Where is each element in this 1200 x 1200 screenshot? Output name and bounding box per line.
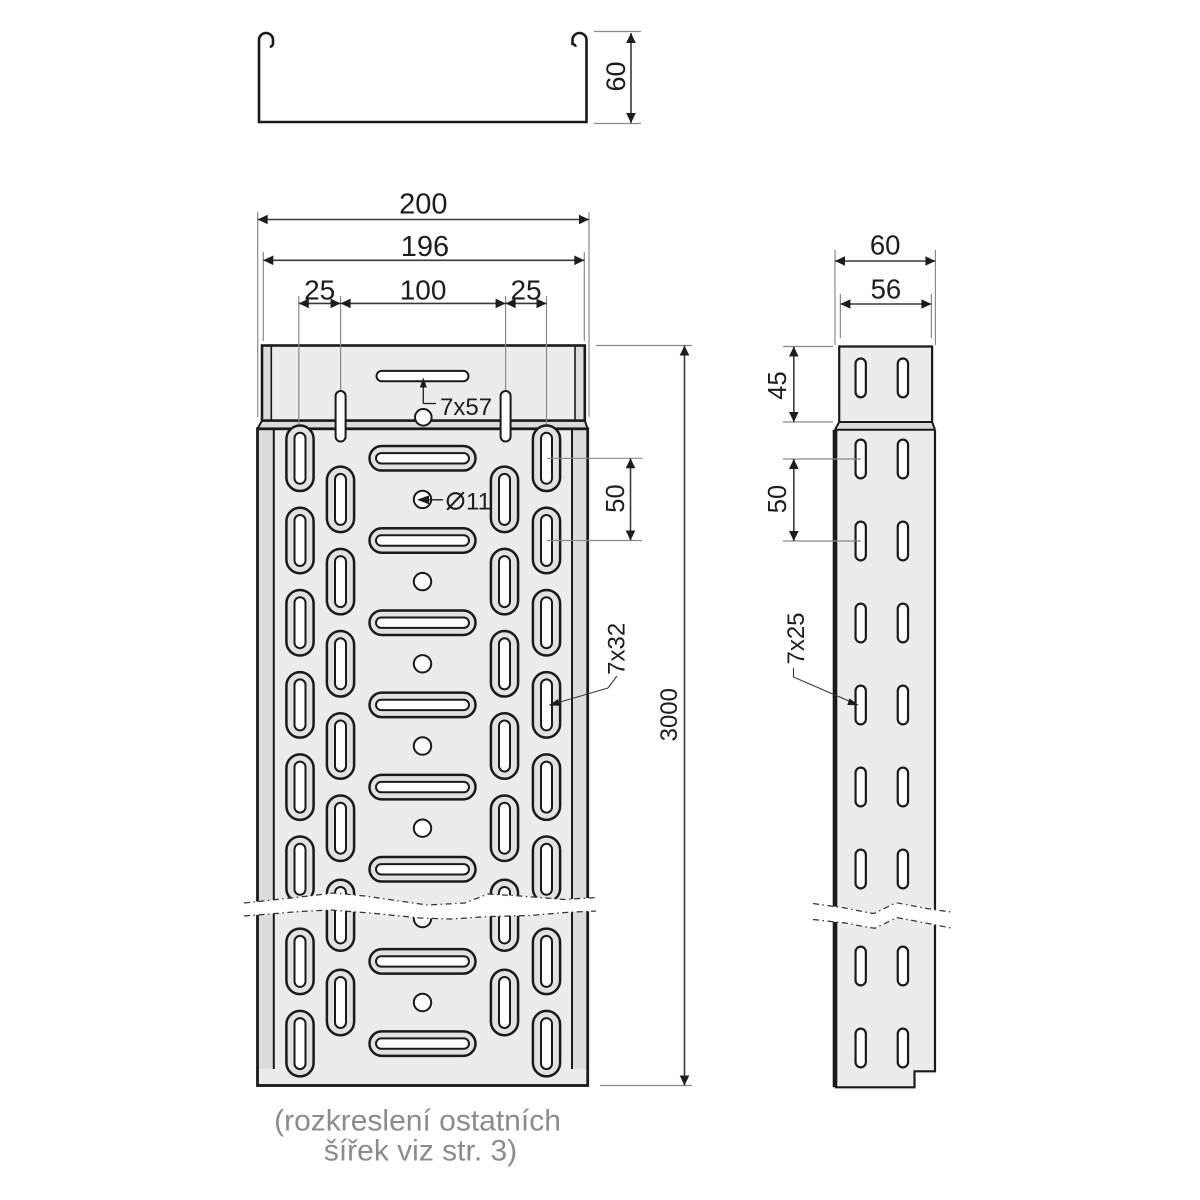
- svg-text:7x25: 7x25: [783, 612, 810, 664]
- svg-text:(rozkreslení ostatních: (rozkreslení ostatních: [274, 1105, 561, 1138]
- svg-text:25: 25: [510, 275, 541, 306]
- svg-text:50: 50: [602, 484, 630, 512]
- svg-text:11: 11: [466, 489, 491, 516]
- svg-text:200: 200: [399, 189, 447, 221]
- svg-text:50: 50: [764, 485, 792, 513]
- svg-text:45: 45: [764, 371, 792, 399]
- svg-text:60: 60: [870, 230, 901, 261]
- svg-text:šířek viz str. 3): šířek viz str. 3): [324, 1135, 517, 1168]
- svg-text:56: 56: [871, 274, 902, 305]
- svg-text:7x57: 7x57: [440, 394, 492, 421]
- svg-text:196: 196: [401, 231, 449, 263]
- svg-text:3000: 3000: [656, 688, 683, 741]
- svg-text:60: 60: [601, 61, 631, 91]
- svg-text:25: 25: [304, 275, 335, 306]
- svg-text:100: 100: [400, 275, 447, 306]
- svg-text:7x32: 7x32: [603, 623, 630, 675]
